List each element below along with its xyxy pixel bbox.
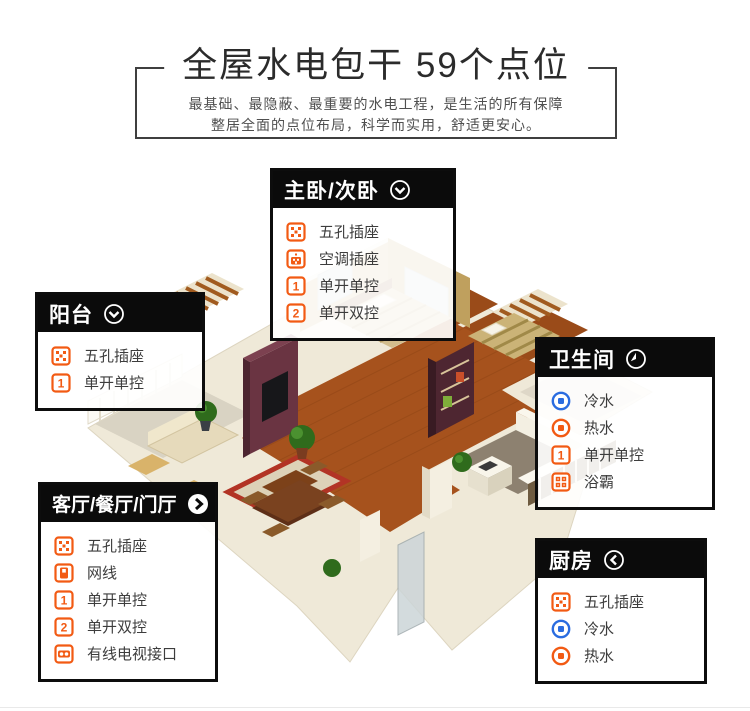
list-item: 1 单开单控 xyxy=(285,272,441,299)
list-item: 浴霸 xyxy=(550,468,700,495)
list-item: 五孔插座 xyxy=(53,532,203,559)
chevron-right-circle-icon xyxy=(187,493,209,515)
list-item: 空调插座 xyxy=(285,245,441,272)
callout-bathroom: 卫生间 冷水 热水 1 单开单控 xyxy=(535,337,715,510)
svg-text:1: 1 xyxy=(292,279,299,293)
list-item: 1 单开单控 xyxy=(53,586,203,613)
list-item: 1 单开单控 xyxy=(550,441,700,468)
callout-body: 冷水 热水 1 单开单控 浴霸 xyxy=(538,377,712,507)
subtitle-line-2: 整居全面的点位布局，科学而实用，舒适更安心。 xyxy=(135,115,617,136)
list-item: 1 单开单控 xyxy=(50,369,190,396)
list-item: 网线 xyxy=(53,559,203,586)
cold-water-icon xyxy=(550,618,571,639)
callout-body: 五孔插座 空调插座 1 单开单控 2 单开双控 xyxy=(273,208,453,338)
callout-living-header: 客厅/餐厅/门厅 xyxy=(41,485,215,522)
item-label: 浴霸 xyxy=(584,471,614,492)
item-label: 空调插座 xyxy=(319,248,379,269)
list-item: 五孔插座 xyxy=(285,218,441,245)
svg-text:1: 1 xyxy=(557,448,564,462)
page-subtitle: 最基础、最隐蔽、最重要的水电工程，是生活的所有保障 整居全面的点位布局，科学而实… xyxy=(135,94,617,136)
svg-text:2: 2 xyxy=(60,620,67,634)
svg-text:1: 1 xyxy=(57,376,64,390)
item-label: 五孔插座 xyxy=(584,591,644,612)
item-label: 单开单控 xyxy=(584,444,644,465)
callout-title: 卫生间 xyxy=(549,344,615,374)
item-label: 冷水 xyxy=(584,618,614,639)
subtitle-line-1: 最基础、最隐蔽、最重要的水电工程，是生活的所有保障 xyxy=(135,94,617,115)
callout-master-bedroom-header: 主卧/次卧 xyxy=(273,171,453,208)
callout-title: 阳台 xyxy=(49,299,93,329)
five-hole-socket-icon xyxy=(285,221,306,242)
item-label: 单开双控 xyxy=(319,302,379,323)
list-item: 热水 xyxy=(550,642,692,669)
item-label: 单开单控 xyxy=(84,372,144,393)
svg-text:2: 2 xyxy=(292,306,299,320)
item-label: 单开双控 xyxy=(87,616,147,637)
callout-title: 客厅/餐厅/门厅 xyxy=(52,490,177,517)
callout-master-bedroom: 主卧/次卧 五孔插座 空调插座 1 单开单控 xyxy=(270,168,456,341)
clock-circle-icon xyxy=(625,348,647,370)
glass-door xyxy=(398,532,424,635)
five-hole-socket-icon xyxy=(50,345,71,366)
list-item: 五孔插座 xyxy=(50,342,190,369)
switch-1-icon: 1 xyxy=(550,444,571,465)
switch-1-icon: 1 xyxy=(53,589,74,610)
hot-water-icon xyxy=(550,645,571,666)
item-label: 五孔插座 xyxy=(84,345,144,366)
page-title: 全屋水电包干 59个点位 xyxy=(164,38,588,94)
callout-title: 主卧/次卧 xyxy=(284,175,379,205)
item-label: 五孔插座 xyxy=(319,221,379,242)
item-label: 单开单控 xyxy=(87,589,147,610)
hot-water-icon xyxy=(550,417,571,438)
callout-kitchen: 厨房 五孔插座 冷水 热水 xyxy=(535,538,707,684)
promo-page: 全屋水电包干 59个点位 最基础、最隐蔽、最重要的水电工程，是生活的所有保障 整… xyxy=(0,0,750,711)
switch-2-icon: 2 xyxy=(285,302,306,323)
five-hole-socket-icon xyxy=(550,591,571,612)
network-port-icon xyxy=(53,562,74,583)
tv-port-icon xyxy=(53,643,74,664)
callout-bathroom-header: 卫生间 xyxy=(538,340,712,377)
list-item: 2 单开双控 xyxy=(53,613,203,640)
list-item: 五孔插座 xyxy=(550,588,692,615)
cold-water-icon xyxy=(550,390,571,411)
switch-2-icon: 2 xyxy=(53,616,74,637)
list-item: 冷水 xyxy=(550,387,700,414)
callout-living-dining-foyer: 客厅/餐厅/门厅 五孔插座 网线 1 单开单 xyxy=(38,482,218,682)
item-label: 冷水 xyxy=(584,390,614,411)
bath-heater-icon xyxy=(550,471,571,492)
callout-balcony: 阳台 五孔插座 1 单开单控 xyxy=(35,292,205,411)
switch-1-icon: 1 xyxy=(50,372,71,393)
list-item: 2 单开双控 xyxy=(285,299,441,326)
svg-text:1: 1 xyxy=(60,593,67,607)
item-label: 单开单控 xyxy=(319,275,379,296)
callout-balcony-header: 阳台 xyxy=(38,295,202,332)
item-label: 五孔插座 xyxy=(87,535,147,556)
list-item: 有线电视接口 xyxy=(53,640,203,667)
ac-socket-icon xyxy=(285,248,306,269)
chevron-left-circle-icon xyxy=(603,549,625,571)
list-item: 热水 xyxy=(550,414,700,441)
item-label: 网线 xyxy=(87,562,117,583)
callout-body: 五孔插座 冷水 热水 xyxy=(538,578,704,681)
item-label: 热水 xyxy=(584,645,614,666)
section-divider xyxy=(0,707,750,708)
list-item: 冷水 xyxy=(550,615,692,642)
item-label: 热水 xyxy=(584,417,614,438)
title-block: 全屋水电包干 59个点位 最基础、最隐蔽、最重要的水电工程，是生活的所有保障 整… xyxy=(135,38,617,142)
chevron-down-circle-icon xyxy=(389,179,411,201)
five-hole-socket-icon xyxy=(53,535,74,556)
callout-body: 五孔插座 1 单开单控 xyxy=(38,332,202,408)
callout-body: 五孔插座 网线 1 单开单控 2 单开双控 xyxy=(41,522,215,679)
callout-kitchen-header: 厨房 xyxy=(538,541,704,578)
chevron-down-circle-icon xyxy=(103,303,125,325)
item-label: 有线电视接口 xyxy=(87,643,177,664)
callout-title: 厨房 xyxy=(549,545,593,575)
switch-1-icon: 1 xyxy=(285,275,306,296)
